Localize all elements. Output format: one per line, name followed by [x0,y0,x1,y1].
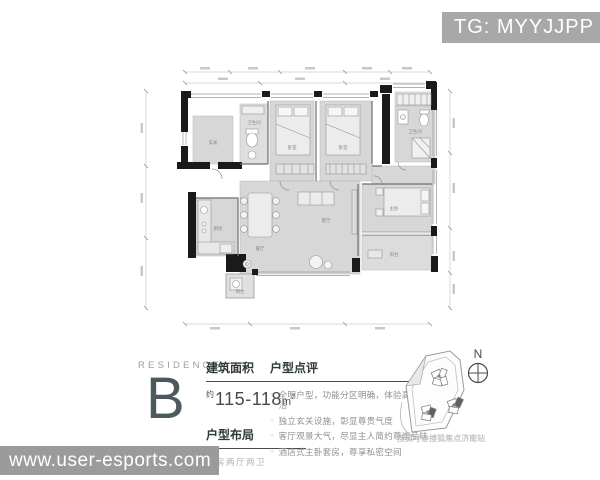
room-label: 玄关 [209,139,218,146]
area-approx: 约 [206,390,214,399]
room-label: 卧室 [288,144,297,151]
floor-plan: 玄关 卫生间 卧室 卧室 卫生间 厨房 餐厅 客厅 主卧 阳台 阳台 [130,58,465,343]
residence-letter: B [146,370,185,428]
footer-watermark-text: www.user-esports.com [9,450,211,471]
footer-watermark: www.user-esports.com [0,446,219,475]
bed-icon [376,188,430,216]
room-label: 阳台 [236,288,245,295]
site-outline [401,351,465,436]
room-label: 厨房 [214,225,223,232]
room-label: 餐厅 [256,245,265,252]
room-label: 卫生间 [408,128,422,135]
bullet-circle-icon: ○ [270,416,274,426]
room-label: 卧室 [339,144,348,151]
tg-badge-text: TG: MYYJJPP [454,16,594,38]
bullet-circle-icon: ○ [270,390,274,400]
review-bullet: ○ 酒店式主卧套房，尊享私密空间 [270,447,433,457]
compass-icon: N [469,347,488,383]
bullet-circle-icon: ○ [270,447,274,457]
bullet-text: 酒店式主卧套房，尊享私密空间 [279,447,402,457]
bullet-text: 独立玄关设施，彰显尊贵气度 [279,416,393,426]
tg-badge: TG: MYYJJPP [442,12,600,43]
site-plan-watermark: 搜狐号@搜狐焦点济南站 [397,433,485,443]
svg-text:N: N [474,347,483,361]
bullet-circle-icon: ○ [270,431,274,441]
page: TG: MYYJJPP [0,0,600,480]
room-label: 主卧 [390,205,399,212]
dining-table-icon [241,193,280,237]
room-label: 客厅 [322,217,331,224]
balcony-cabinet-icon [368,250,382,258]
room-label: 卫生间 [247,119,261,126]
room-label: 阳台 [390,251,399,258]
site-plan: N [396,344,506,444]
